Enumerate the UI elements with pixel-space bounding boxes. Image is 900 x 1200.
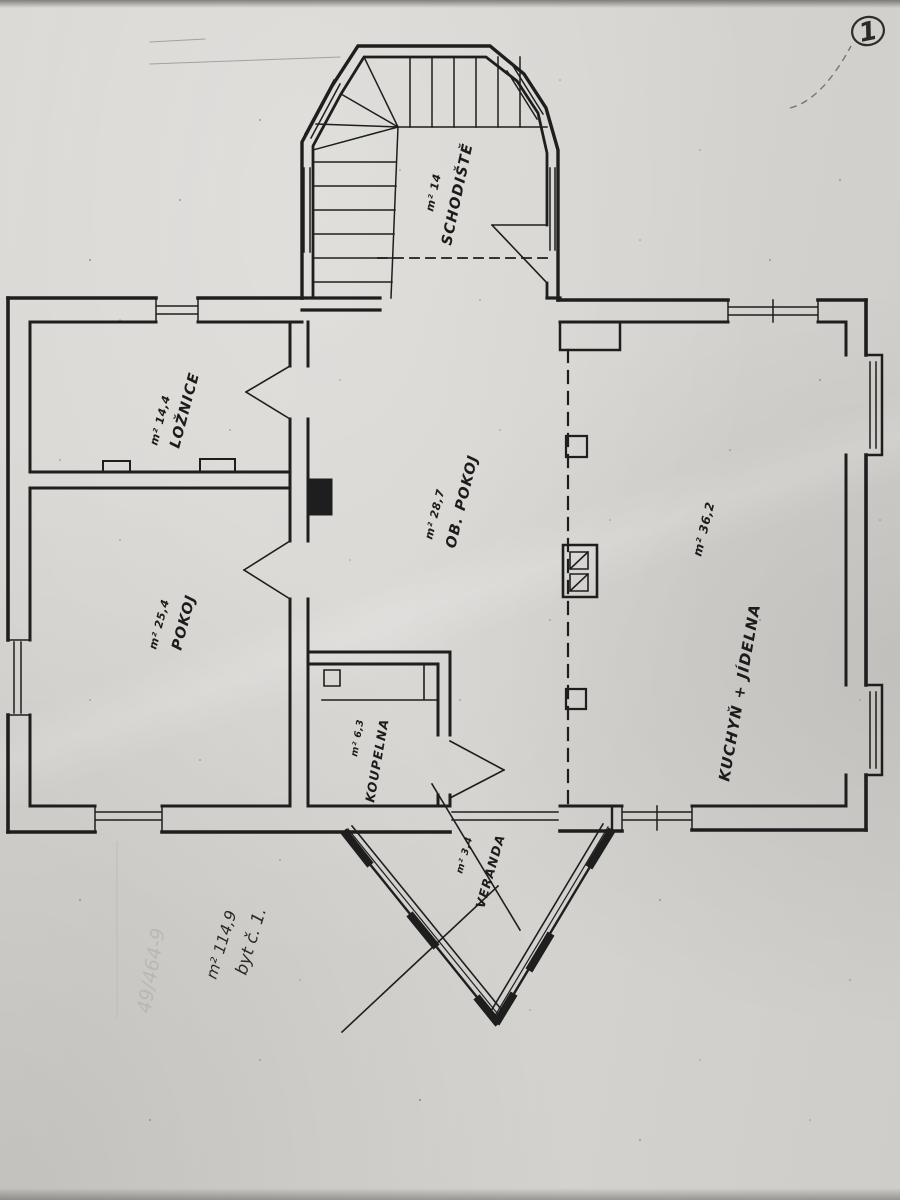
room-area-koupelna: m² 6,3 xyxy=(349,718,366,757)
room-area-pokoj: m² 25,4 xyxy=(146,598,172,651)
kitchen-fixtures xyxy=(563,350,597,806)
speckle xyxy=(699,1059,701,1061)
window-kitchen-top xyxy=(728,300,818,322)
tower-window-left-side xyxy=(304,168,310,252)
stove-burners xyxy=(570,552,588,591)
speckle xyxy=(639,239,641,241)
window-bay-upper xyxy=(866,355,882,455)
speckle xyxy=(279,859,281,861)
room-label-loznice: LOŽNICE xyxy=(166,370,203,450)
pencil-note: 49/464-9 xyxy=(133,927,170,1015)
veranda-walls xyxy=(344,806,612,1022)
room-area-veranda: m² 3,4 xyxy=(454,835,475,874)
speckle xyxy=(839,179,841,181)
chimney-block xyxy=(308,480,331,514)
speckle xyxy=(79,899,81,901)
bathroom-fixtures xyxy=(322,664,438,700)
page-number-leader-line xyxy=(790,46,851,108)
speckle xyxy=(199,759,201,761)
speckle xyxy=(859,699,861,701)
speckle xyxy=(549,619,551,621)
door-koupelna xyxy=(450,741,504,798)
wall-bottom-outer xyxy=(8,830,866,832)
door-pokoj xyxy=(244,541,290,599)
speckle xyxy=(849,979,851,981)
door-tower xyxy=(492,225,547,283)
door-veranda-swing-short xyxy=(432,784,520,930)
speckle xyxy=(149,1119,151,1121)
speckle xyxy=(259,1059,261,1061)
bathroom-right-wall xyxy=(438,652,450,806)
speckle xyxy=(559,79,561,81)
speckle xyxy=(339,379,341,381)
handwritten-annotations: 1 byt č. 1. m² 114,9 49/464-9 xyxy=(133,14,887,1015)
room-label-kuchyn: KUCHYŇ + JÍDELNA xyxy=(714,602,764,783)
speckle xyxy=(229,429,231,431)
partition-loznice-pokoj xyxy=(30,472,290,488)
stair-treads-top xyxy=(410,57,520,127)
room-area-schodiste: m² 14 xyxy=(423,172,444,212)
chimney-notch-a xyxy=(103,461,130,472)
room-label-pokoj: POKOJ xyxy=(169,593,199,652)
window-bottom-right xyxy=(622,806,692,830)
speckle xyxy=(719,829,721,831)
speckle xyxy=(459,699,461,701)
window-bay-lower xyxy=(866,685,882,775)
stair-well-edge xyxy=(391,127,398,298)
tower-bottom-stubs xyxy=(302,298,560,310)
bathroom-top-wall xyxy=(308,652,450,664)
speckle xyxy=(59,459,61,461)
speckle xyxy=(259,119,261,121)
speckle xyxy=(499,429,501,431)
speckle xyxy=(659,899,661,901)
kitchen-wall-step xyxy=(560,322,620,350)
tower-window-right-side xyxy=(550,168,555,250)
stair-treads-lower xyxy=(313,162,396,282)
speckle xyxy=(399,169,401,171)
window-loznice-top xyxy=(156,298,198,322)
room-area-kuchyn: m² 36,2 xyxy=(690,500,717,557)
speckle xyxy=(699,149,701,151)
veranda-left-inner xyxy=(352,826,505,1014)
speckle xyxy=(89,259,91,261)
speckle xyxy=(349,559,351,561)
speckle xyxy=(609,519,611,521)
chimney-notch-b xyxy=(200,459,235,472)
partitions xyxy=(30,322,620,806)
speckle xyxy=(89,699,91,701)
door-loznice xyxy=(246,366,290,419)
door-veranda-swing-long xyxy=(342,886,498,1032)
speckle xyxy=(769,259,771,261)
scan-marks-top-left xyxy=(150,39,340,64)
room-label-koupelna: KOUPELNA xyxy=(362,717,392,803)
scanned-floorplan-page: SCHODIŠTĚ m² 14 LOŽNICE m² 14,4 OB. POKO… xyxy=(0,0,900,1200)
windows xyxy=(8,298,882,832)
speckle xyxy=(759,619,761,621)
speckle xyxy=(119,539,121,541)
veranda-left-mid xyxy=(348,829,501,1018)
kitchen-square-upper xyxy=(566,436,587,457)
speckle xyxy=(479,299,481,301)
speckle xyxy=(419,1099,421,1101)
speckle xyxy=(179,199,181,201)
window-bay-upper-glass xyxy=(870,362,876,448)
veranda-right-inner xyxy=(488,824,603,1016)
veranda-right-mid xyxy=(493,827,608,1019)
speckle xyxy=(809,1119,811,1121)
speckle xyxy=(119,319,121,321)
speckle xyxy=(879,519,881,521)
window-bottom-left xyxy=(95,806,162,832)
speckle xyxy=(529,1009,531,1011)
speckle xyxy=(639,1139,641,1141)
window-bay-lower-glass xyxy=(870,692,876,768)
veranda-threshold xyxy=(452,812,558,820)
speckle xyxy=(729,449,731,451)
floorplan-svg: SCHODIŠTĚ m² 14 LOŽNICE m² 14,4 OB. POKO… xyxy=(0,0,900,1200)
window-left-wall xyxy=(8,640,30,715)
speckle xyxy=(299,979,301,981)
room-label-veranda: VERANDA xyxy=(472,832,507,910)
speckle xyxy=(819,379,821,381)
room-area-ob-pokoj: m² 28,7 xyxy=(422,488,447,541)
room-label-ob-pokoj: OB. POKOJ xyxy=(443,453,482,550)
room-label-schodiste: SCHODIŠTĚ xyxy=(437,141,476,247)
